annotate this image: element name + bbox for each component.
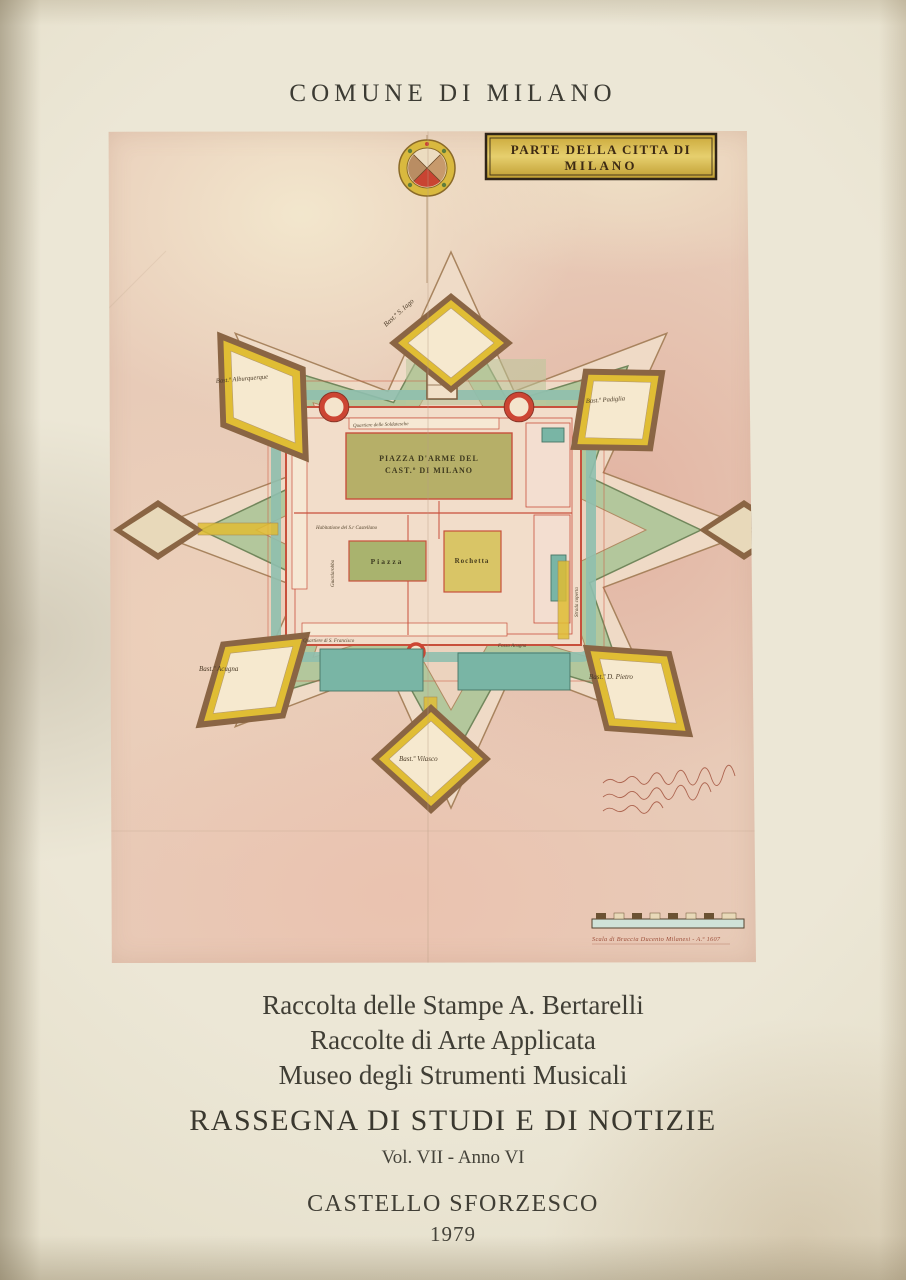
bastion-label-s-iago: Bast.º S. Iago [382, 297, 416, 329]
scale-caption: Scala di Braccia Ducento Milanesi - A.º … [592, 936, 721, 943]
east-hornwork [699, 500, 756, 560]
bastion-label-acugna: Bast.º Acugna [199, 665, 239, 673]
institution-line: Raccolte di Arte Applicata [8, 1023, 898, 1058]
year: 1979 [8, 1222, 898, 1247]
scale-bar: Scala di Braccia Ducento Milanesi - A.º … [592, 913, 744, 944]
series-title: RASSEGNA DI STUDI E DI NOTIZIE [8, 1104, 898, 1138]
rochetta-label: Rochetta [455, 557, 490, 565]
northeast-tower [507, 395, 531, 419]
piazza-armi-label-line1: PIAZZA D'ARME DEL [379, 454, 479, 463]
piazza-label: Piazza [371, 557, 404, 566]
label-quartiere-s-francisco: Quartiere di S. Francisco [303, 639, 355, 644]
institution-line: Museo degli Strumenti Musicali [8, 1058, 898, 1093]
bastion-label-d-pietro: Bast.º D. Pietro [589, 673, 633, 681]
map-cartouche: PARTE DELLA CITTA DI MILANO [486, 134, 716, 179]
cartouche-line1: PARTE DELLA CITTA DI [511, 142, 691, 157]
label-habitatione-castellano: Habitatione del S.r Castellano [315, 526, 378, 531]
publisher-title: COMUNE DI MILANO [8, 80, 898, 108]
map-plate: PARTE DELLA CITTA DI MILANO [106, 131, 756, 963]
northwest-tower [322, 395, 346, 419]
location-title: CASTELLO SFORZESCO [8, 1191, 898, 1218]
compass-rose-icon [399, 140, 455, 196]
piazza-armi-label-line2: CAST.º DI MILANO [385, 466, 473, 475]
institution-line: Raccolta delle Stampe A. Bertarelli [8, 988, 898, 1023]
book-cover: COMUNE DI MILANO [0, 0, 906, 1280]
bastion-label-vilasco: Bast.º Vilasco [399, 755, 438, 763]
handwritten-note [603, 765, 735, 813]
institutions-block: Raccolta delle Stampe A. Bertarelli Racc… [8, 988, 898, 1093]
label-fosso-acugna: Fosso Acugna [497, 644, 527, 649]
cartouche-line2: MILANO [565, 158, 638, 173]
label-strada-coperta: Strada coperta [575, 587, 580, 617]
fortress-map: PARTE DELLA CITTA DI MILANO [106, 131, 756, 963]
label-guardarobba: Guardarobba [331, 559, 336, 587]
castle-complex: PIAZZA D'ARME DEL CAST.º DI MILANO Piazz… [286, 372, 581, 660]
west-hornwork [113, 500, 203, 560]
volume-info: Vol. VII - Anno VI [8, 1147, 898, 1169]
